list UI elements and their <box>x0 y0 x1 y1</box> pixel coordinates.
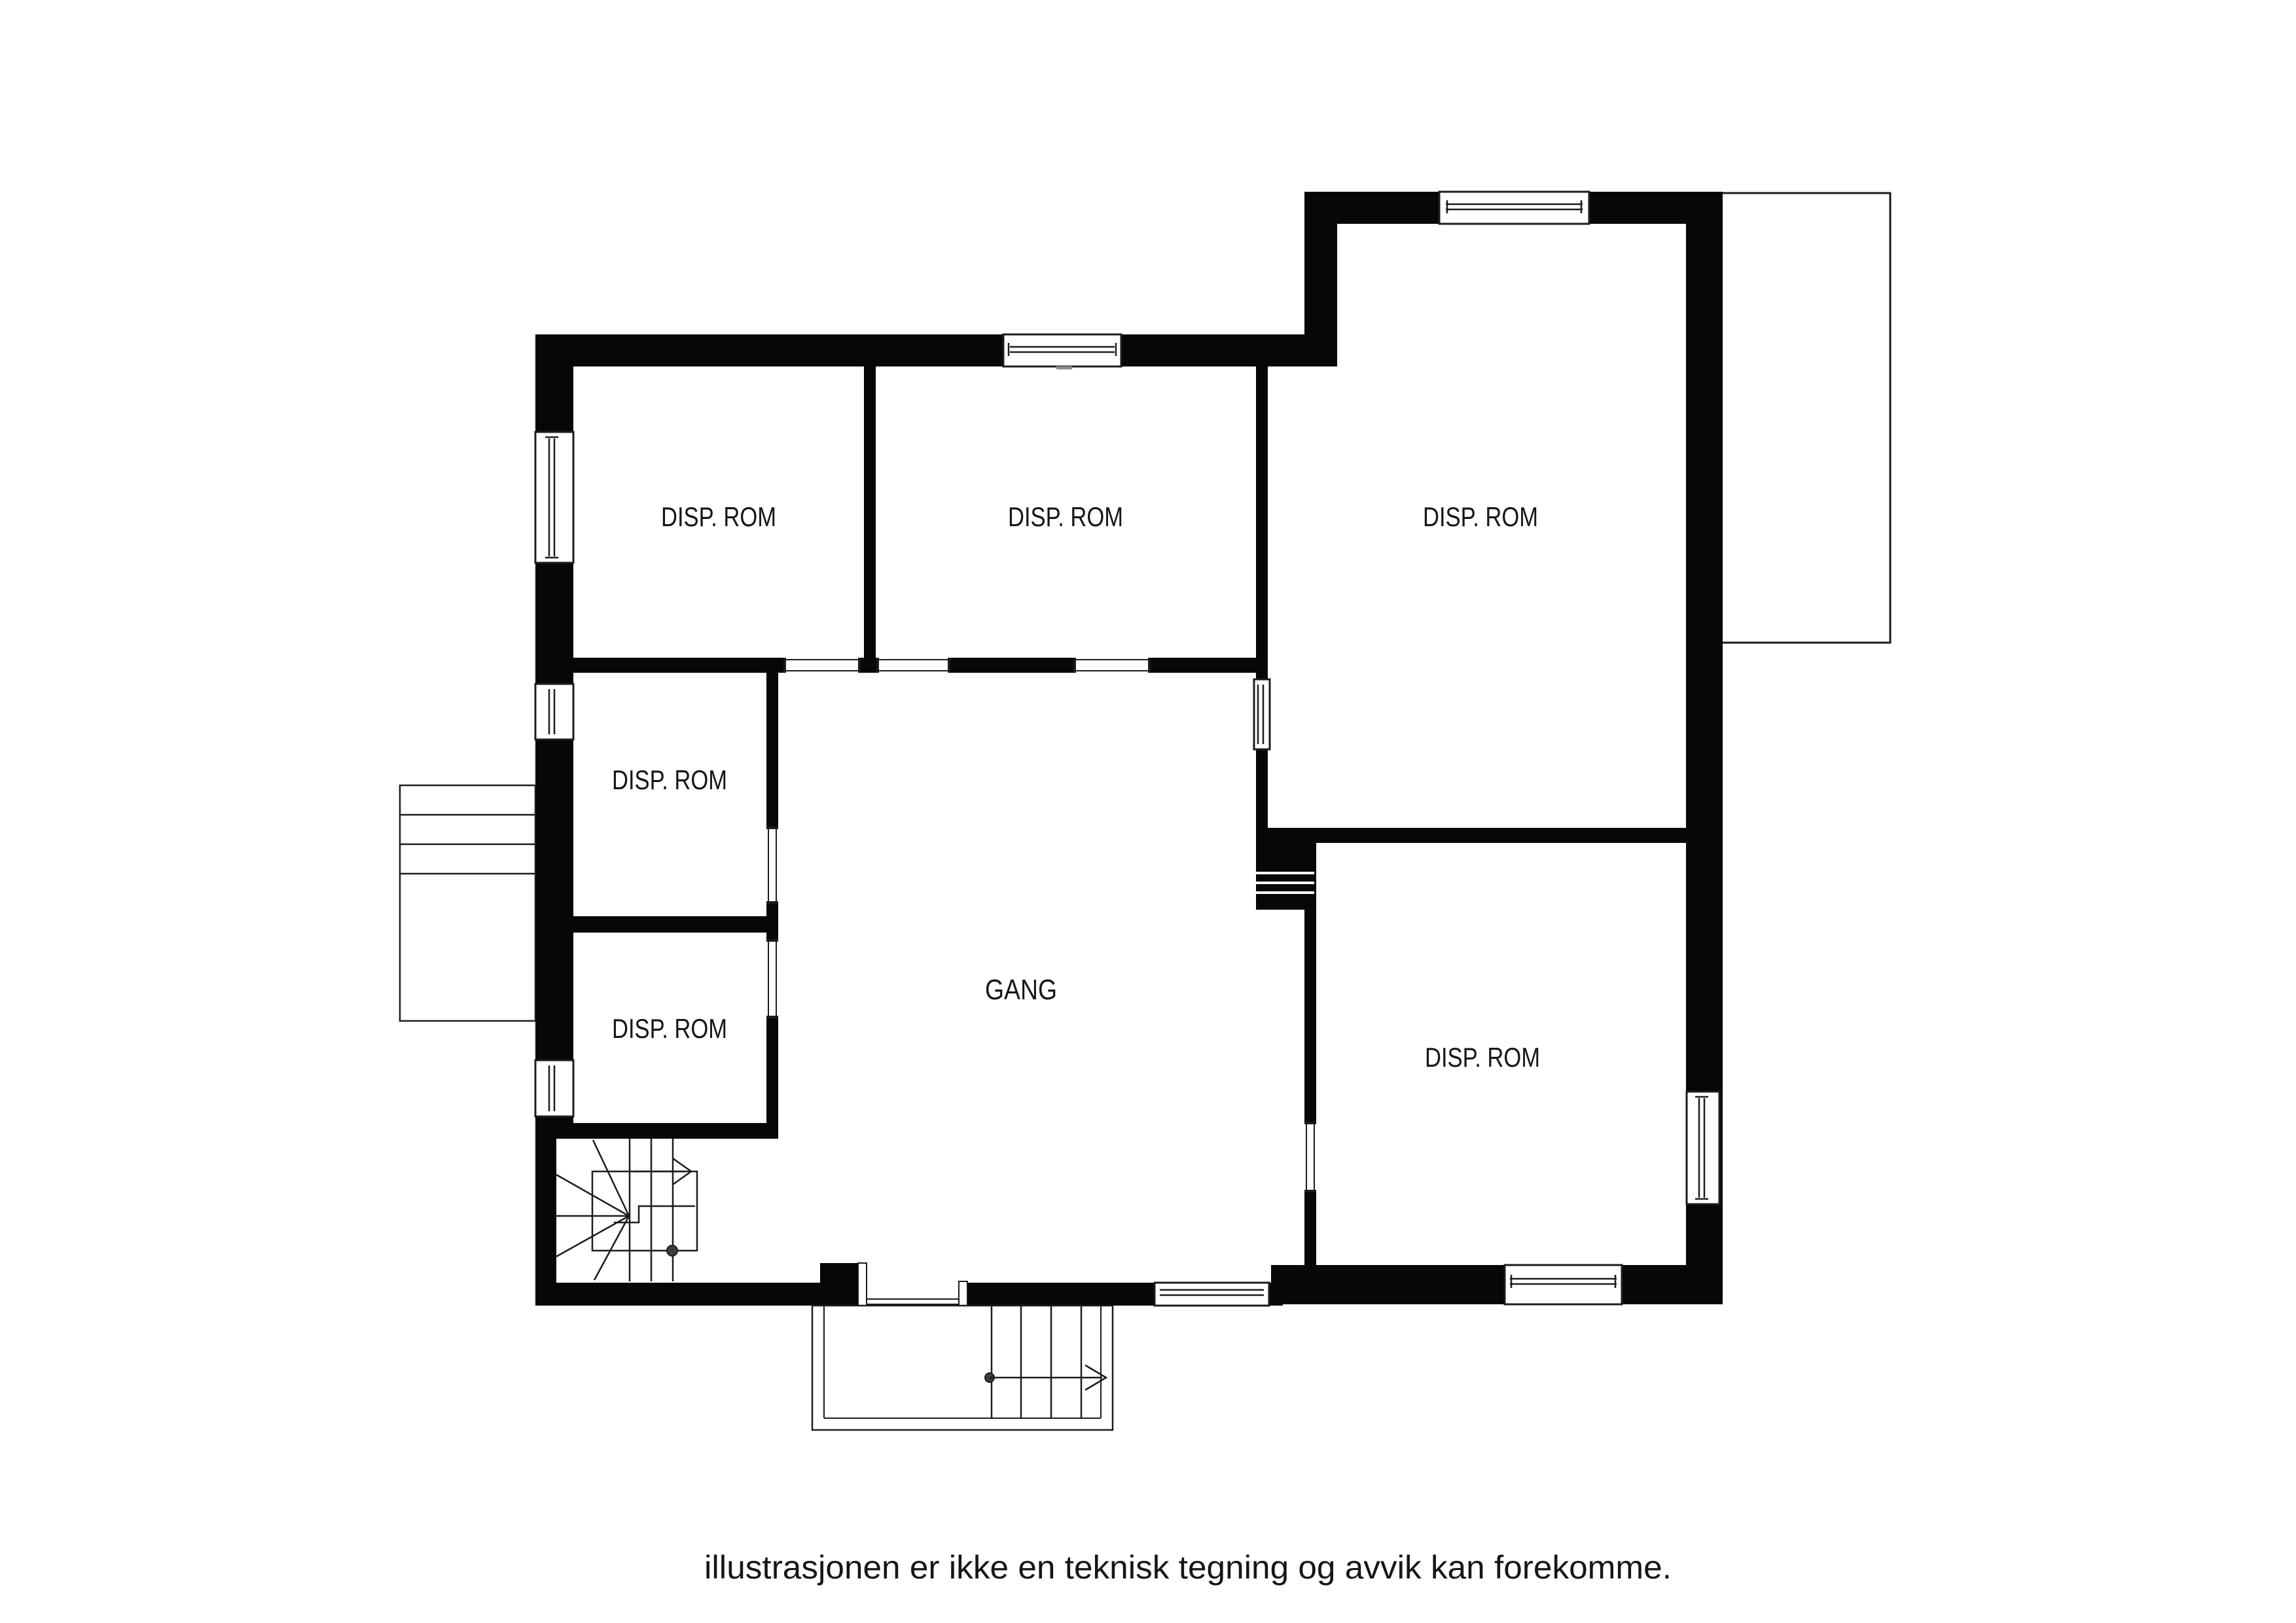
window-left-upper <box>535 432 573 563</box>
window-left-middle <box>535 684 573 740</box>
window-top-right-room <box>1439 192 1589 224</box>
wall-partition-topleft-topmiddle <box>864 366 876 658</box>
label-disp-rom-left-middle: DISP. ROM <box>612 764 727 795</box>
window-left-lower <box>535 1060 573 1116</box>
disclaimer-caption: illustrasjonen er ikke en teknisk tegnin… <box>704 1549 1672 1586</box>
label-disp-rom-top-left: DISP. ROM <box>661 501 776 532</box>
wall-bottomright-room-west <box>1304 910 1316 1265</box>
walls <box>535 192 1723 1306</box>
label-disp-rom-top-right: DISP. ROM <box>1423 501 1538 532</box>
stair-symbols <box>400 193 1890 1430</box>
room-labels: DISP. ROM DISP. ROM DISP. ROM DISP. ROM … <box>612 501 1540 1073</box>
door-left-lower-room <box>765 940 780 1017</box>
stair-newel-dot <box>667 1245 677 1256</box>
label-disp-rom-left-lower: DISP. ROM <box>612 1013 727 1044</box>
interior-winder-stair <box>556 1139 697 1281</box>
door-left-middle-room <box>765 828 780 902</box>
door-top-middle-room-east <box>1075 656 1149 674</box>
floor-plan-canvas: DISP. ROM DISP. ROM DISP. ROM DISP. ROM … <box>0 0 2296 1623</box>
door-top-left-room <box>785 656 859 674</box>
terrace-outline <box>1723 193 1890 643</box>
window-top-main <box>1003 334 1121 368</box>
wall-topright-room-south <box>1268 828 1686 843</box>
wall-leftlower-room-south <box>535 1123 778 1139</box>
door-top-middle-room-west <box>878 656 949 674</box>
exterior-entry-stair <box>812 1306 1113 1430</box>
label-disp-rom-bottom-right: DISP. ROM <box>1425 1042 1540 1073</box>
exterior-stair-left <box>400 785 535 1021</box>
wall-south-right <box>1271 1265 1723 1304</box>
floor-plan-drawing: DISP. ROM DISP. ROM DISP. ROM DISP. ROM … <box>0 0 2296 1623</box>
entry-door <box>858 1263 967 1307</box>
wall-left-exterior-lower <box>535 1139 556 1306</box>
door-bottom-right-room <box>1303 1123 1318 1191</box>
label-gang: GANG <box>985 974 1057 1006</box>
window-interior-gang <box>1254 679 1270 749</box>
window-right-wall <box>1687 1092 1719 1204</box>
window-south-bottom-right <box>1505 1265 1622 1304</box>
label-disp-rom-top-middle: DISP. ROM <box>1008 501 1123 532</box>
window-south-gang <box>1155 1283 1269 1306</box>
wall-top-main <box>535 334 1337 366</box>
wall-gang-east-thin <box>1256 366 1268 828</box>
wall-small-rooms-divider <box>573 916 766 933</box>
